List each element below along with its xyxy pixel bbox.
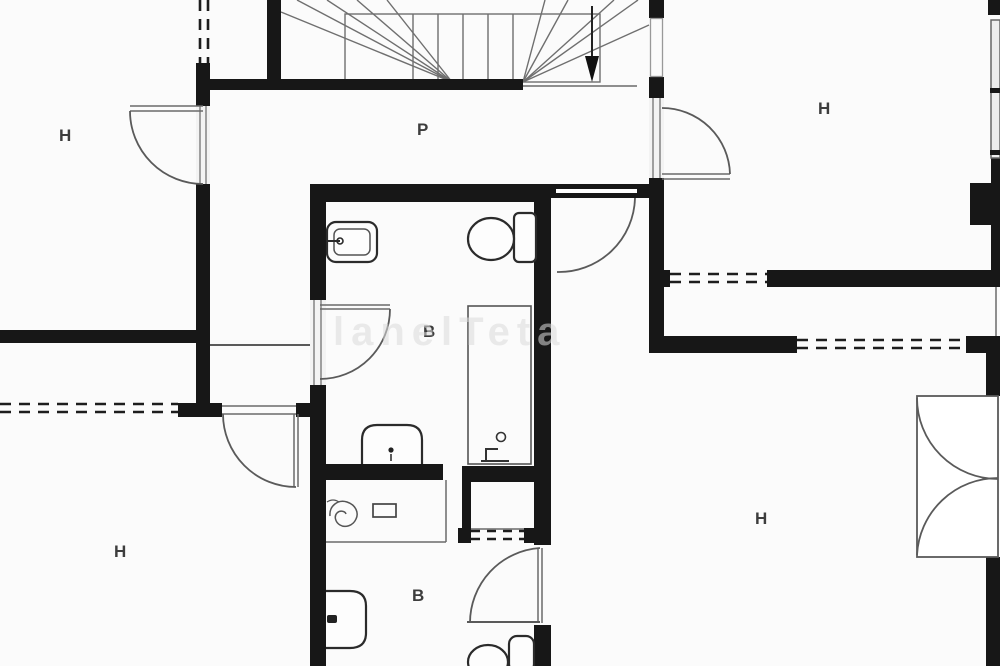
door-swing-arc	[470, 548, 540, 623]
bathroom-lower-door	[467, 548, 542, 623]
room-label-hall-lower-left: H	[114, 542, 127, 562]
wall-corridor-top	[204, 79, 523, 90]
wall-stair-right-stub	[649, 0, 664, 18]
towel-spiral-icon	[330, 501, 357, 526]
window-right-edge	[990, 20, 1000, 158]
room-label-corridor: P	[417, 120, 429, 140]
door-swing-arc	[662, 108, 730, 174]
wall-stair-left	[267, 0, 281, 88]
wall-shower-jamb-right	[524, 528, 551, 543]
window-balcony-lower	[797, 340, 966, 348]
wall-lower-hall-top-a	[178, 403, 222, 417]
door-swing-arc	[557, 198, 635, 272]
wall-left-mid	[0, 330, 197, 343]
room-label-hall-lower-right: H	[755, 509, 768, 529]
washbasin-lower-icon	[326, 591, 366, 648]
wall-hall-right-lower	[196, 184, 210, 413]
washbasin-icon	[326, 222, 377, 262]
hall-door-opening	[196, 106, 210, 184]
fixtures	[326, 213, 536, 666]
wall-shower-jamb-left	[458, 528, 471, 543]
window-lower-left	[0, 404, 178, 412]
lower-hall-door	[222, 406, 298, 487]
window-balcony-upper	[670, 274, 767, 282]
hall-door	[130, 106, 203, 184]
door-swing-arc	[223, 414, 296, 487]
watermark-text: lanelTeta	[333, 310, 693, 355]
right-room-door	[662, 108, 730, 179]
wall-bathroom-top	[310, 184, 551, 202]
soap-tray-icon	[373, 504, 396, 517]
wall-right-pier	[970, 183, 1000, 225]
doors	[130, 106, 998, 623]
floor-plan: H P H B H H B lanelTeta	[0, 0, 1000, 666]
wall-right-top-cap	[988, 0, 1000, 15]
wall-right-b	[986, 336, 1000, 396]
vanity-counter-icon	[327, 500, 396, 526]
wall-bathroom-left-a	[310, 202, 326, 300]
window-upper-left	[200, 0, 208, 63]
wall-hall-right-upper	[196, 63, 210, 108]
wall-bathroom-bottom	[310, 464, 443, 480]
wall-bathroom-left-b	[310, 385, 326, 666]
room-label-room-upper-right: H	[818, 99, 831, 119]
shower-sliding-door	[471, 531, 524, 539]
wall-shower-top	[462, 466, 551, 482]
wall-right-room-left-a	[649, 77, 664, 98]
wall-balcony-top-b	[767, 270, 1000, 287]
right-room-door-opening	[649, 98, 664, 178]
stair-exit-opening	[651, 19, 663, 77]
wall-balcony-top-a	[649, 270, 670, 287]
bidet-icon	[362, 425, 422, 464]
staircase-icon	[281, 0, 649, 86]
door-closed-leaf-slit	[556, 189, 637, 193]
door-swing-arc	[130, 111, 203, 184]
wall-right-c	[986, 557, 1000, 666]
room-label-hall-upper-left: H	[59, 126, 72, 146]
toilet-lower-icon	[468, 636, 534, 666]
right-strip-door	[557, 198, 635, 272]
bathroom-door-opening	[310, 300, 326, 385]
wall-bathroom-right-b	[534, 625, 551, 666]
stairs-direction-arrow-icon	[585, 6, 599, 82]
room-label-bathroom-lower: B	[412, 586, 425, 606]
toilet-icon	[468, 213, 536, 262]
double-swing-door-icon	[917, 396, 998, 557]
